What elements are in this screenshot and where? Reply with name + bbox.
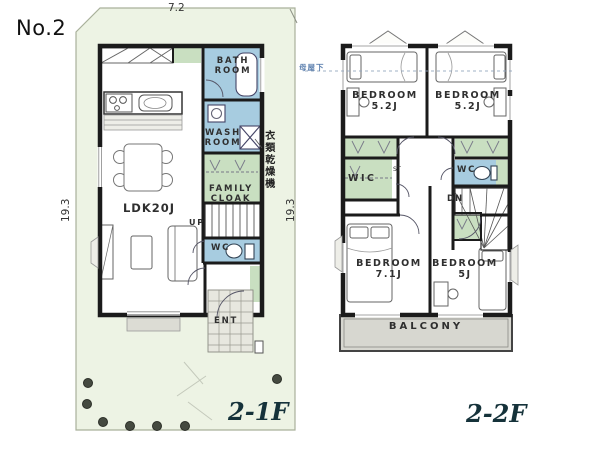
toilet-2f	[474, 166, 497, 180]
bedroom-br-label: BEDROOM 5J	[432, 258, 498, 280]
bedroom-tl-label: BEDROOM 5.2J	[352, 90, 418, 112]
stairs-1f	[205, 203, 260, 238]
entrance-label: ENT	[214, 316, 238, 326]
bedroom-name: BEDROOM	[435, 90, 501, 101]
building-2f	[305, 31, 518, 351]
bedroom-size: 7.1J	[356, 269, 422, 280]
desk-br	[434, 282, 448, 306]
bedroom-name: BEDROOM	[356, 258, 422, 269]
ldk-label: LDK20J	[114, 202, 184, 216]
low-table	[131, 236, 152, 269]
floor-name-1f: 2-1F	[228, 398, 288, 426]
bay-window-mark	[91, 237, 98, 268]
bedroom-bl-label: BEDROOM 7.1J	[356, 258, 422, 280]
stairs-up-label: UP	[189, 218, 205, 227]
roof-note-label: 母屋下	[299, 64, 325, 73]
stairs-down-label: DN	[447, 194, 463, 204]
clothes-dryer-note: 衣類乾燥機	[262, 130, 274, 190]
closet-tr	[455, 137, 508, 158]
kitchen-counter	[104, 92, 182, 130]
kitchen-cabinets	[101, 48, 173, 63]
bedroom-size: 5.2J	[352, 101, 418, 112]
closet-tl	[345, 137, 398, 158]
bedroom-tr-label: BEDROOM 5.2J	[435, 90, 501, 112]
plan-number-title: No.2	[16, 16, 66, 41]
floor-name-2f: 2-2F	[466, 400, 526, 428]
bedroom-name: BEDROOM	[432, 258, 498, 269]
counter-bar	[104, 115, 182, 130]
wic-label: WIC	[348, 173, 377, 184]
wash-basin	[208, 105, 225, 122]
wc-label-1f: WC	[211, 243, 230, 253]
dimension-left: 19.3	[60, 199, 72, 222]
porch-step	[127, 318, 180, 331]
bedroom-name: BEDROOM	[352, 90, 418, 101]
pantry-area	[173, 48, 201, 63]
dimension-top: 7.2	[168, 2, 185, 14]
storage-label: ST	[393, 166, 401, 173]
entrance-step-box	[255, 341, 263, 353]
balcony-label: BALCONY	[386, 321, 466, 333]
bedroom-size: 5.2J	[435, 101, 501, 112]
linen-shelf	[496, 160, 508, 186]
bathroom-label: BATH ROOM	[210, 56, 256, 76]
floorplan-page: No.2 7.2 19.3 19.3 BATH ROOM WASH ROOM 衣…	[0, 0, 600, 450]
washroom-label: WASH ROOM	[200, 128, 246, 148]
family-cloak-label: FAMILY CLOAK	[203, 184, 259, 204]
wc-label-2f: WC	[457, 165, 476, 175]
bedroom-size: 5J	[432, 269, 498, 280]
dimension-right: 19.3	[285, 199, 297, 222]
